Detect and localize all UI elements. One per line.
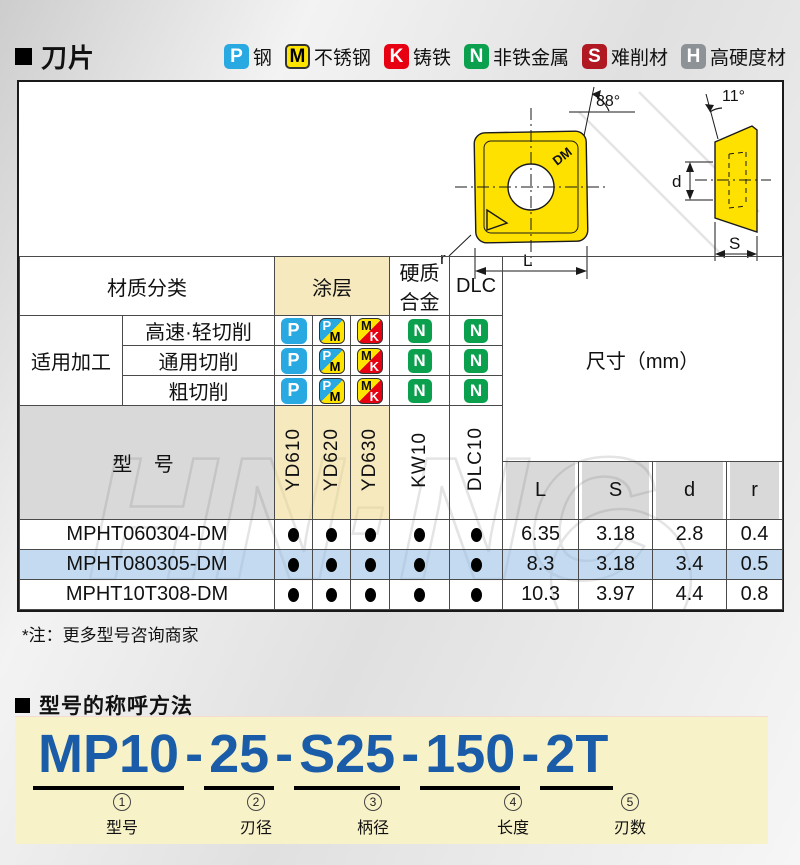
grade-n-icon: N (408, 319, 432, 343)
dlc-header: DLC (450, 257, 503, 316)
insert-side-view-body (715, 126, 757, 232)
radius-leader-line (449, 235, 471, 256)
dim-L-value: 8.3 (503, 550, 579, 580)
material-p-icon: P (224, 44, 249, 69)
grade-pm-icon: PM (319, 348, 345, 374)
grade-p-icon: P (281, 318, 307, 344)
naming-callout-3: 3 柄径 (328, 793, 418, 838)
front-angle-label: 88° (596, 93, 620, 110)
legend-label: 高硬度材 (710, 43, 786, 70)
grade-pm-icon: PM (319, 318, 345, 344)
grade-col-kw10: KW10 (390, 406, 450, 520)
naming-callout-4: 4 长度 (468, 793, 558, 838)
availability-dot (414, 588, 425, 602)
section-header-inserts: 刀片 P 钢 M 不锈钢 K 铸铁 N 非铁金属 S 难削材 (15, 38, 786, 75)
circled-number: 3 (364, 793, 382, 811)
insert-spec-table: 材质分类 涂层 硬质合金 DLC 尺寸（mm） 适用加工 高速·轻切削 P PM… (19, 256, 783, 610)
section-bullet-square (15, 698, 30, 713)
availability-dot (288, 528, 299, 542)
model-name: MPHT080305-DM (20, 550, 275, 580)
availability-dot (326, 558, 337, 572)
model-segment-cutting-dia: 25 (204, 723, 274, 790)
table-row[interactable]: MPHT10T308-DM 10.3 3.97 4.4 0.8 (20, 580, 783, 610)
naming-label: 柄径 (328, 814, 418, 838)
naming-label: 型号 (77, 814, 167, 838)
legend-item-difficult: S 难削材 (582, 43, 668, 70)
grade-col-yd630: YD630 (351, 406, 390, 520)
material-n-icon: N (464, 44, 489, 69)
application-label: 粗切削 (123, 376, 275, 406)
carbide-header: 硬质合金 (390, 257, 450, 316)
model-segment-shank-dia: S25 (294, 723, 400, 790)
side-angle-label: 11° (722, 88, 745, 105)
dim-d-value: 2.8 (653, 520, 727, 550)
catalog-page: 刀片 P 钢 M 不锈钢 K 铸铁 N 非铁金属 S 难削材 (0, 0, 800, 865)
naming-callout-5: 5 刃数 (585, 793, 675, 838)
grade-n-icon: N (464, 319, 488, 343)
coating-header: 涂层 (275, 257, 390, 316)
dim-header-d: d (653, 462, 727, 520)
application-header: 适用加工 (20, 316, 123, 406)
model-segment-model: MP10 (33, 723, 184, 790)
dim-r-value: 0.5 (727, 550, 783, 580)
grade-pm-icon: PM (319, 378, 345, 404)
dim-header-r: r (727, 462, 783, 520)
availability-dot (288, 558, 299, 572)
thickness-label: S (729, 234, 740, 253)
dim-L-value: 10.3 (503, 580, 579, 610)
side-angle-ray (706, 94, 718, 139)
legend-item-castiron: K 铸铁 (384, 43, 451, 70)
segment-separator: - (520, 723, 540, 790)
size-unit-label: 尺寸（mm） (503, 257, 783, 462)
grade-mk-icon: MK (357, 348, 383, 374)
availability-dot (365, 558, 376, 572)
material-m-icon: M (285, 44, 310, 69)
legend-label: 不锈钢 (314, 43, 371, 70)
grade-col-yd620: YD620 (313, 406, 351, 520)
dim-d-value: 3.4 (653, 550, 727, 580)
circled-number: 2 (247, 793, 265, 811)
grade-n-icon: N (464, 349, 488, 373)
dim-header-L: L (503, 462, 579, 520)
model-name: MPHT10T308-DM (20, 580, 275, 610)
availability-dot (326, 588, 337, 602)
circled-number: 1 (113, 793, 131, 811)
dim-header-S: S (579, 462, 653, 520)
circled-number: 4 (504, 793, 522, 811)
dim-r-value: 0.4 (727, 520, 783, 550)
grade-p-icon: P (281, 378, 307, 404)
model-naming-example: MP10-25-S25-150-2T (33, 723, 613, 790)
table-row[interactable]: MPHT060304-DM 6.35 3.18 2.8 0.4 (20, 520, 783, 550)
grade-n-icon: N (408, 379, 432, 403)
naming-label: 长度 (468, 814, 558, 838)
model-segment-length: 150 (420, 723, 520, 790)
grade-p-icon: P (281, 348, 307, 374)
table-row-selected[interactable]: MPHT080305-DM 8.3 3.18 3.4 0.5 (20, 550, 783, 580)
material-legend: P 钢 M 不锈钢 K 铸铁 N 非铁金属 S 难削材 H 高硬度材 (224, 43, 786, 70)
model-column-header: 型 号 (20, 406, 275, 520)
grade-n-icon: N (408, 349, 432, 373)
dim-L-value: 6.35 (503, 520, 579, 550)
dim-d-value: 4.4 (653, 580, 727, 610)
grade-col-yd610: YD610 (275, 406, 313, 520)
availability-dot (471, 558, 482, 572)
dim-S-value: 3.18 (579, 520, 653, 550)
availability-dot (414, 528, 425, 542)
dim-S-value: 3.97 (579, 580, 653, 610)
availability-dot (471, 588, 482, 602)
dim-S-value: 3.18 (579, 550, 653, 580)
availability-dot (471, 528, 482, 542)
legend-item-hardened: H 高硬度材 (681, 43, 786, 70)
section-bullet-square (15, 48, 32, 65)
legend-label: 铸铁 (413, 43, 451, 70)
availability-dot (365, 528, 376, 542)
legend-item-stainless: M 不锈钢 (285, 43, 371, 70)
availability-dot (365, 588, 376, 602)
legend-item-steel: P 钢 (224, 43, 272, 70)
legend-label: 难削材 (611, 43, 668, 70)
segment-separator: - (274, 723, 294, 790)
naming-callout-2: 2 刃径 (211, 793, 301, 838)
section-title: 刀片 (41, 38, 95, 75)
naming-label: 刃径 (211, 814, 301, 838)
footnote: *注：更多型号咨询商家 (22, 621, 199, 646)
segment-separator: - (400, 723, 420, 790)
grade-col-dlc10: DLC10 (450, 406, 503, 520)
legend-label: 钢 (253, 43, 272, 70)
model-segment-flutes: 2T (540, 723, 613, 790)
naming-callout-1: 1 型号 (77, 793, 167, 838)
naming-label: 刃数 (585, 814, 675, 838)
availability-dot (288, 588, 299, 602)
circled-number: 5 (621, 793, 639, 811)
dim-r-value: 0.8 (727, 580, 783, 610)
legend-item-nonferrous: N 非铁金属 (464, 43, 569, 70)
segment-separator: - (184, 723, 204, 790)
insert-spec-panel: HN·NC (17, 80, 784, 612)
hole-dia-label: d (672, 172, 681, 191)
availability-dot (414, 558, 425, 572)
application-label: 高速·轻切削 (123, 316, 275, 346)
grade-mk-icon: MK (357, 378, 383, 404)
grade-n-icon: N (464, 379, 488, 403)
application-label: 通用切削 (123, 346, 275, 376)
grade-mk-icon: MK (357, 318, 383, 344)
material-class-header: 材质分类 (20, 257, 275, 316)
legend-label: 非铁金属 (493, 43, 569, 70)
material-k-icon: K (384, 44, 409, 69)
material-s-icon: S (582, 44, 607, 69)
model-name: MPHT060304-DM (20, 520, 275, 550)
model-naming-panel: MP10-25-S25-150-2T 1 型号 2 刃径 3 柄径 4 长度 5… (15, 716, 768, 844)
material-h-icon: H (681, 44, 706, 69)
availability-dot (326, 528, 337, 542)
table-header-row: 材质分类 涂层 硬质合金 DLC 尺寸（mm） (20, 257, 783, 316)
